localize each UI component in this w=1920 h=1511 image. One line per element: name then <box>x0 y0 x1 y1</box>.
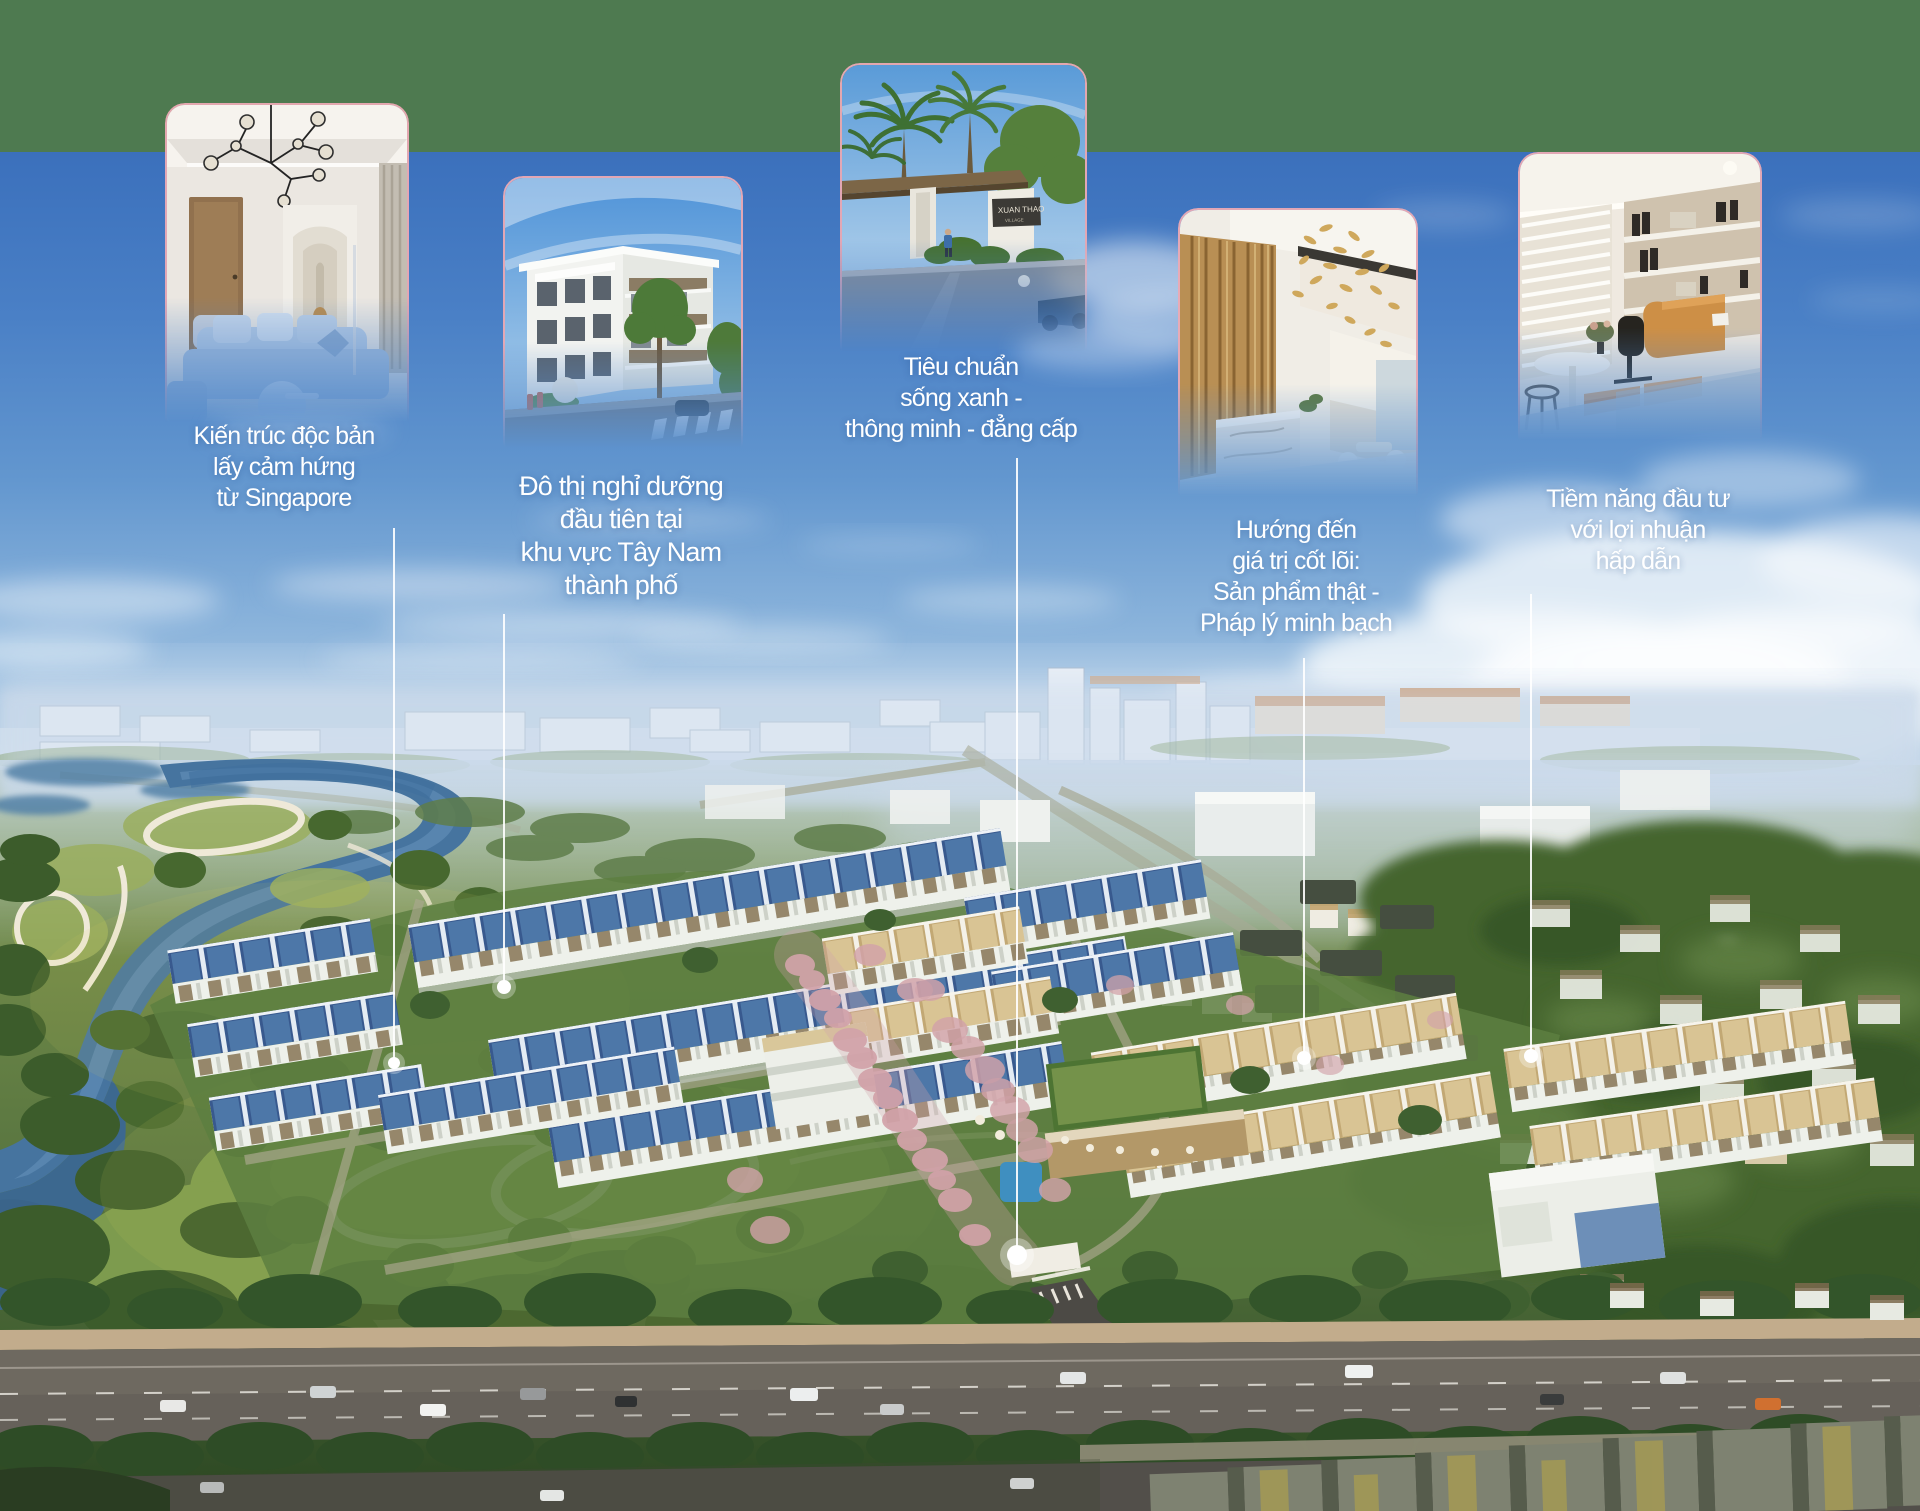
svg-text:XUAN THAO: XUAN THAO <box>998 204 1045 215</box>
svg-text:VILLAGE: VILLAGE <box>1005 217 1024 223</box>
